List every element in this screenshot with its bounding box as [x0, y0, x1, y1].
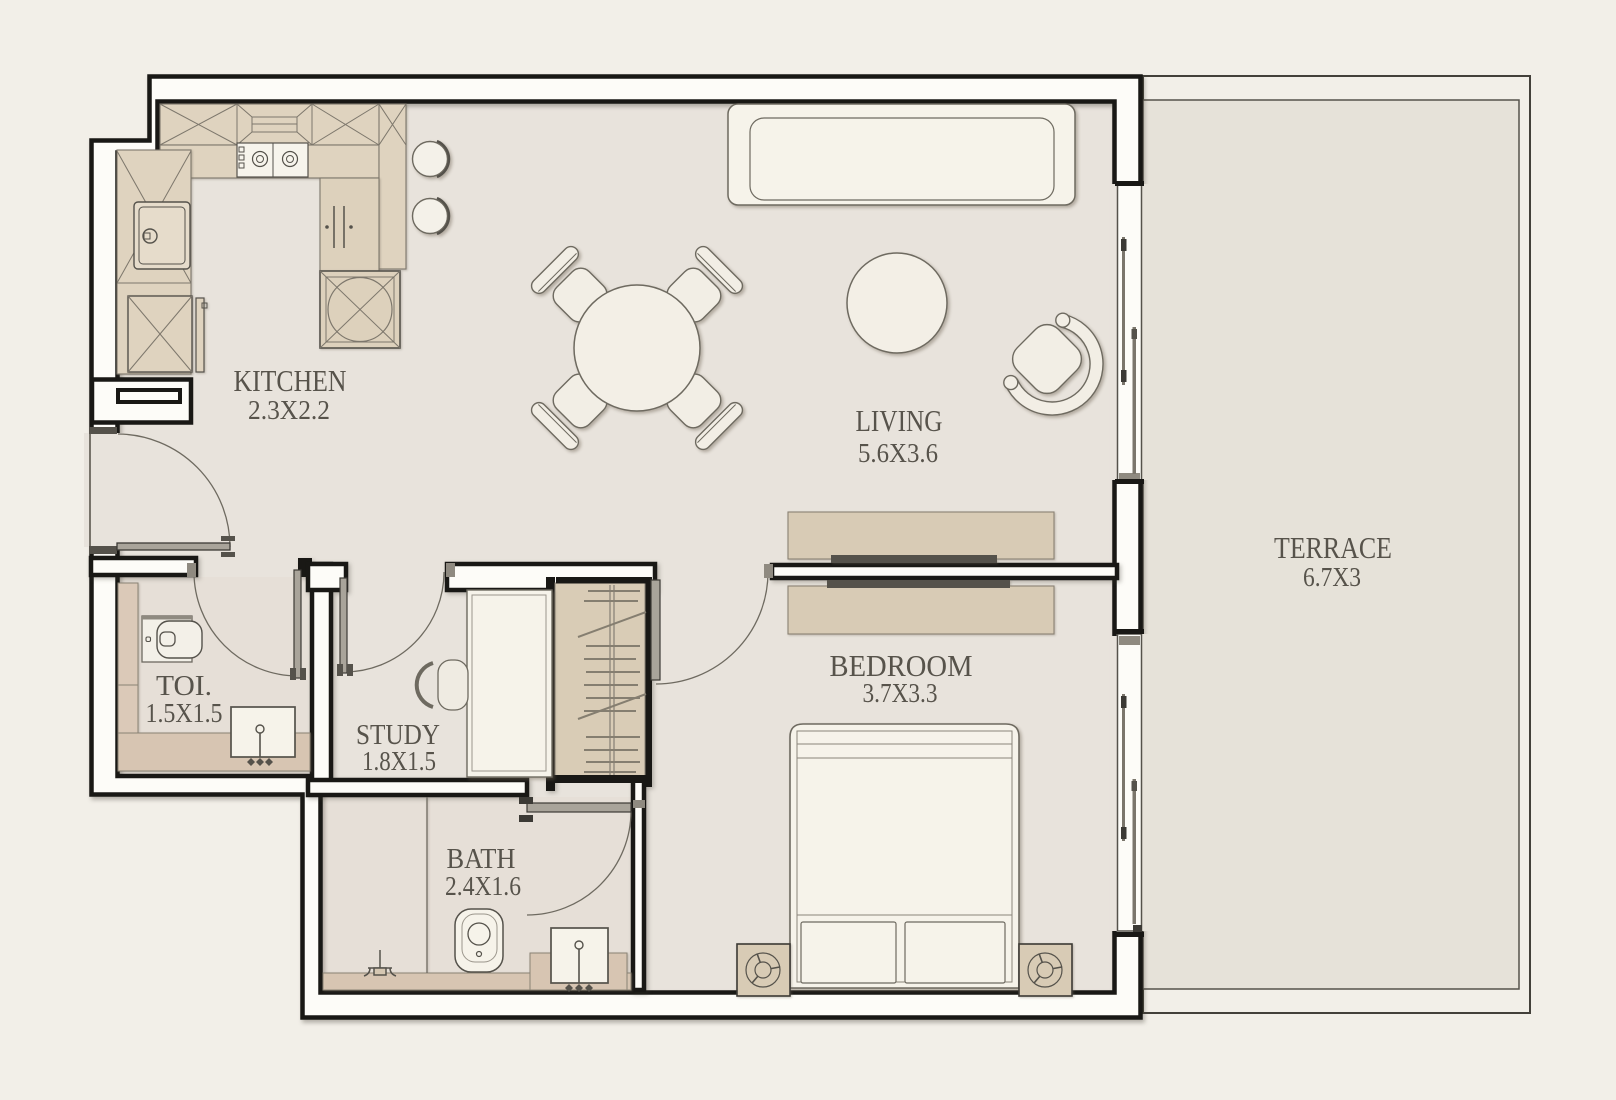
svg-text:TERRACE: TERRACE [1274, 530, 1392, 565]
svg-text:1.8X1.5: 1.8X1.5 [362, 746, 436, 776]
svg-text:1.5X1.5: 1.5X1.5 [146, 698, 223, 728]
svg-text:3.7X3.3: 3.7X3.3 [863, 678, 938, 708]
svg-text:6.7X3: 6.7X3 [1303, 562, 1361, 592]
svg-text:2.3X2.2: 2.3X2.2 [248, 395, 330, 425]
svg-text:LIVING: LIVING [856, 403, 943, 438]
svg-text:2.4X1.6: 2.4X1.6 [445, 871, 521, 901]
svg-text:5.6X3.6: 5.6X3.6 [858, 438, 938, 468]
svg-text:KITCHEN: KITCHEN [234, 363, 347, 398]
